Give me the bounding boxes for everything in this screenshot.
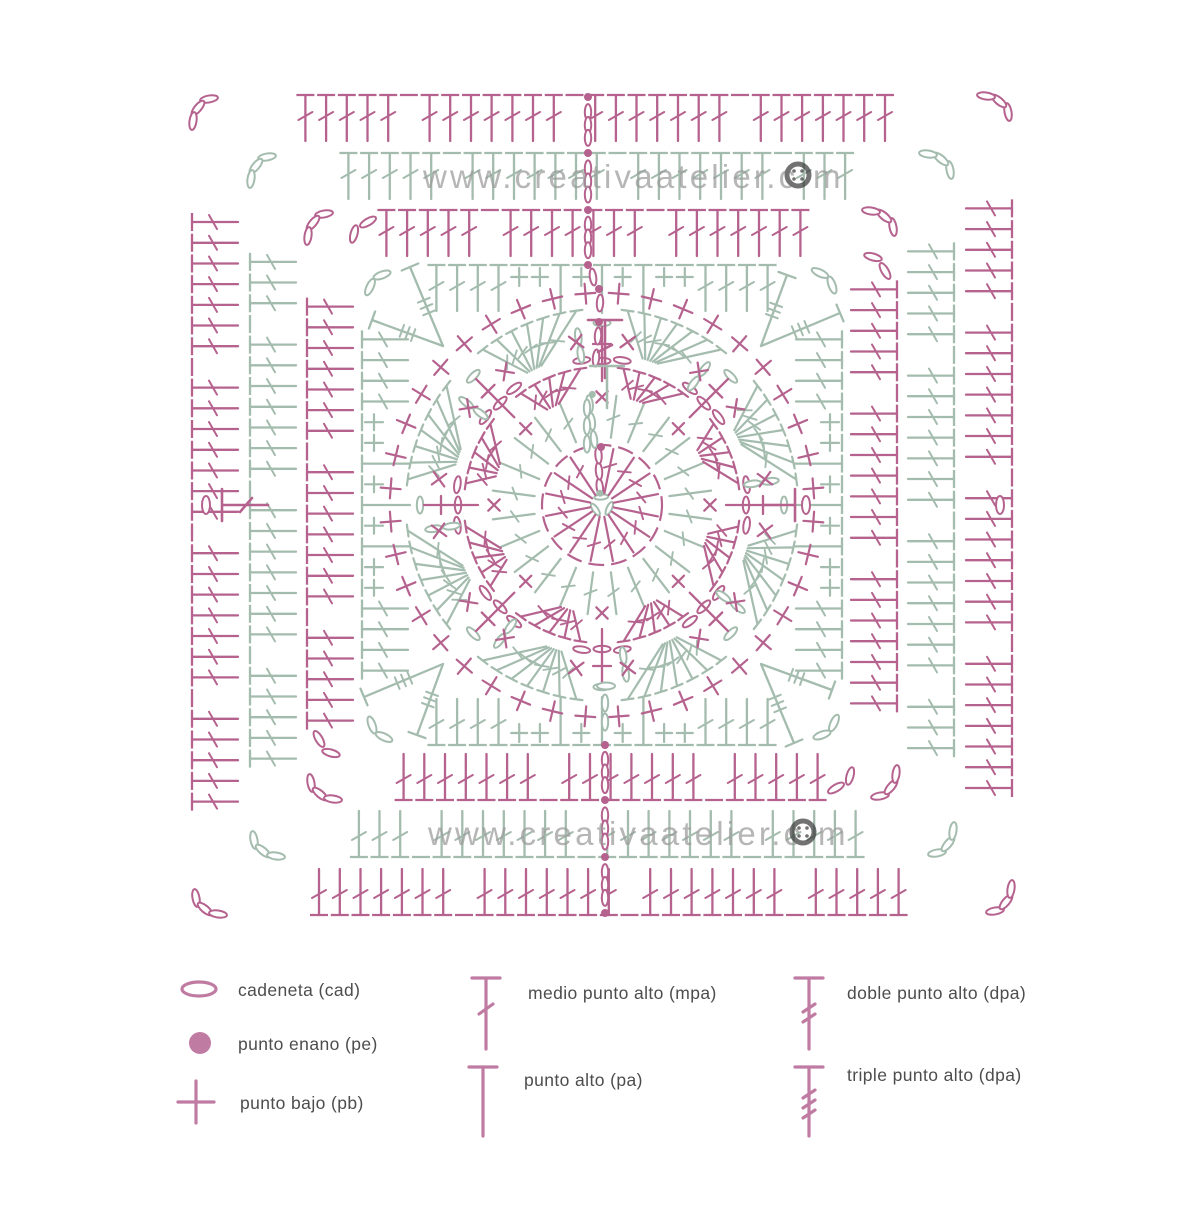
svg-text:www.creativaatelier.c: www.creativaatelier.c [427,815,803,852]
svg-text:m: m [813,158,844,195]
svg-text:doble punto alto (dpa): doble punto alto (dpa) [847,983,1026,1003]
svg-text:punto alto (pa): punto alto (pa) [524,1070,643,1090]
svg-text:m: m [818,815,849,852]
svg-text:punto bajo (pb): punto bajo (pb) [240,1093,364,1113]
svg-text:medio punto alto (mpa): medio punto alto (mpa) [528,983,717,1003]
svg-text:punto enano (pe): punto enano (pe) [238,1034,378,1054]
svg-text:www.creativaatelier.c: www.creativaatelier.c [422,158,798,195]
svg-text:triple punto alto (dpa): triple punto alto (dpa) [847,1065,1022,1085]
svg-text:cadeneta (cad): cadeneta (cad) [238,980,360,1000]
